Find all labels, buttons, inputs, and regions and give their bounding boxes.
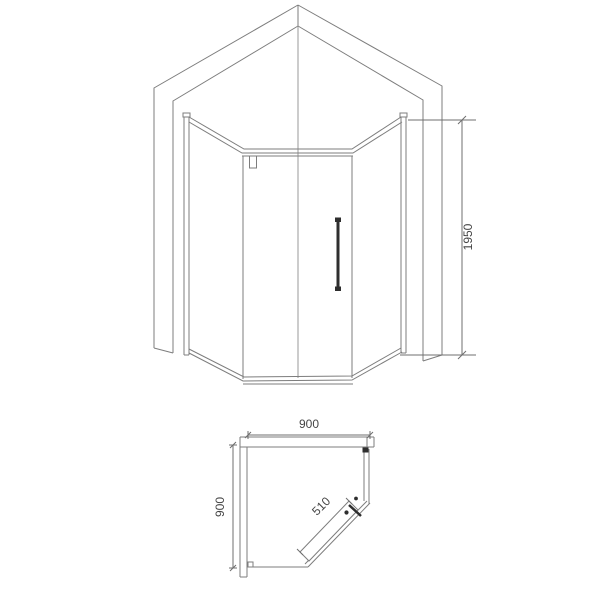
shower-frame-elevation: [183, 113, 407, 384]
door-dimension-label: 510: [309, 494, 333, 518]
right-post-cap: [400, 113, 407, 117]
plan-right-corner-block: [363, 448, 368, 452]
hinge-bracket: [250, 156, 257, 168]
plan-view: 510 900 900: [213, 417, 374, 577]
dimension-depth: 900: [213, 442, 237, 571]
bottom-rail-outer: [189, 348, 401, 377]
wall-outline: [154, 5, 442, 378]
left-post-cap: [183, 113, 190, 117]
dimension-width: 900: [245, 417, 373, 439]
wall-right-bottom-edge: [423, 355, 442, 361]
width-dimension-label: 900: [299, 417, 319, 431]
door-panel-face: [300, 501, 358, 561]
door-handle: [336, 218, 341, 291]
handle-mount-top: [336, 218, 341, 222]
plan-left-wall: [240, 437, 247, 577]
drawing-canvas: 1950 510: [0, 0, 600, 600]
wall-left-outer-edge: [154, 5, 298, 348]
shower-enclosure-technical-drawing: 1950 510: [0, 0, 600, 600]
right-post: [401, 117, 406, 353]
top-rail-outer: [189, 117, 401, 149]
left-post: [184, 117, 189, 355]
wall-right-outer-edge: [298, 5, 442, 355]
plan-top-wall: [240, 437, 374, 447]
plan-panel-end-dot: [355, 497, 358, 500]
front-elevation-view: 1950: [154, 5, 476, 384]
depth-dimension-label: 900: [213, 497, 227, 517]
wall-right-inner-edge: [298, 26, 423, 361]
plan-bottom-corner-block: [248, 562, 253, 567]
wall-left-inner-edge: [173, 26, 298, 353]
dimension-height: 1950: [400, 116, 476, 359]
wall-left-bottom-edge: [154, 348, 173, 353]
plan-handle-dot: [345, 511, 348, 514]
height-dimension-label: 1950: [461, 223, 475, 250]
plan-right-edge: [364, 449, 369, 504]
handle-mount-bottom: [336, 287, 341, 291]
